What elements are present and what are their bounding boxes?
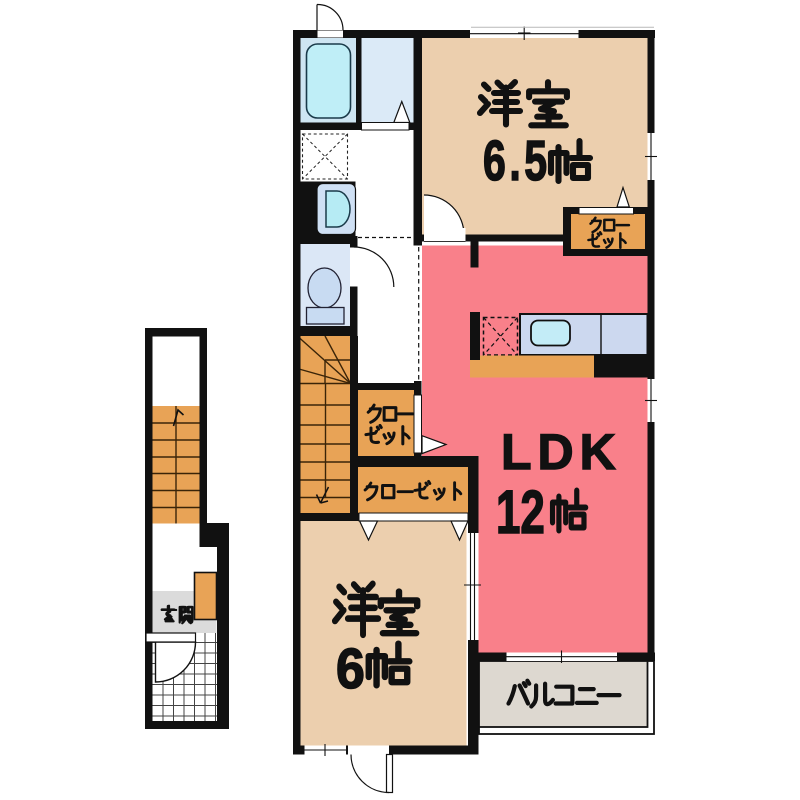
svg-text:12: 12 (496, 479, 545, 547)
svg-text:6: 6 (336, 637, 365, 701)
svg-text:6.5: 6.5 (483, 128, 551, 192)
svg-text:LDK: LDK (501, 424, 622, 480)
